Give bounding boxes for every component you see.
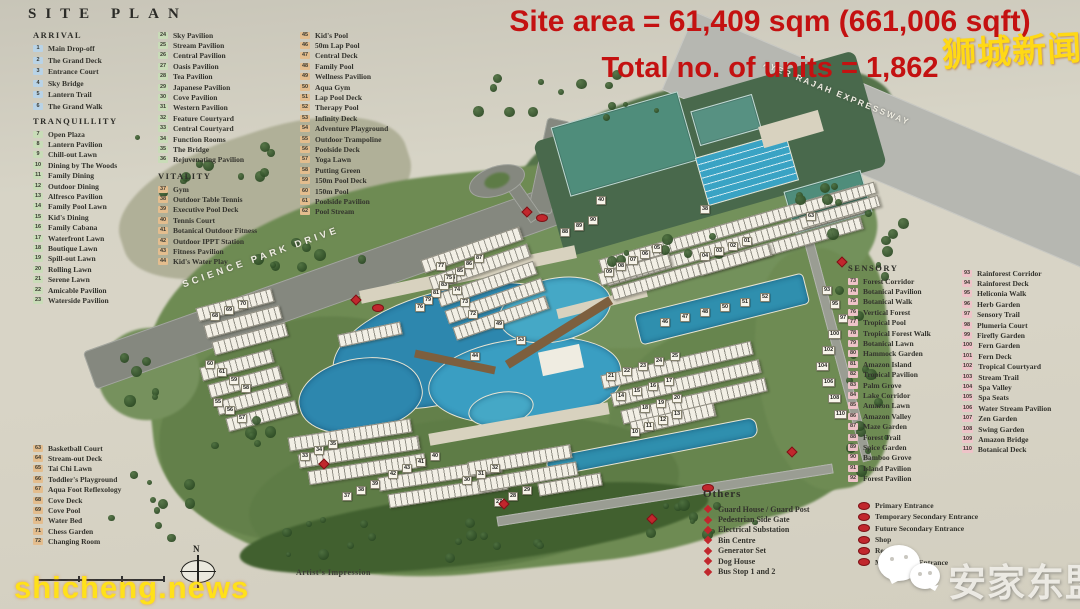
map-tree-icon — [120, 353, 129, 362]
legend-item: 96Herb Garden — [962, 299, 1051, 309]
legend-item: 109Amazon Bridge — [962, 434, 1051, 444]
legend-item: Generator Set — [703, 546, 810, 556]
legend-item: Bin Centre — [703, 535, 810, 545]
map-tree-icon — [282, 528, 292, 538]
legend-item: 81Amazon Island — [848, 359, 931, 369]
legend-item-label: Main Drop-off — [48, 44, 95, 53]
unit-number-marker: 23 — [638, 362, 648, 371]
legend-item-marker: 99 — [962, 332, 972, 339]
legend-item-marker: 54 — [300, 125, 310, 132]
legend-item-label: Family Pool — [315, 62, 354, 71]
map-tree-icon — [888, 229, 898, 239]
legend-item-label: Open Plaza — [48, 130, 85, 139]
legend-item: 108Swing Garden — [962, 424, 1051, 434]
legend-item-label: Pool Stream — [315, 207, 354, 216]
unit-number-marker: 25 — [670, 352, 680, 361]
legend-item-marker: 42 — [158, 238, 168, 245]
unit-number-marker: 22 — [622, 367, 632, 376]
legend-item-marker: 65 — [33, 465, 43, 472]
legend-item-label: Cove Deck — [48, 496, 82, 505]
legend-item-label: Amazon Lawn — [863, 401, 910, 410]
legend-title-arrival: ARRIVAL — [33, 30, 102, 40]
unit-number-marker: 28 — [508, 492, 518, 501]
legend-item-label: Executive Pool Deck — [173, 205, 238, 214]
legend-item-label: Putting Green — [315, 166, 360, 175]
legend-item-marker: 8 — [33, 141, 43, 148]
legend-item-label: Boutique Lawn — [48, 244, 97, 253]
legend-item-marker: 68 — [33, 497, 43, 504]
unit-number-marker: 69 — [224, 306, 234, 315]
legend-item: 79Botanical Lawn — [848, 338, 931, 348]
legend-item: 98Plumeria Court — [962, 320, 1051, 330]
legend-item-marker — [704, 567, 712, 575]
legend-item: 105Spa Seats — [962, 393, 1051, 403]
legend-item-label: 150m Pool — [315, 187, 349, 196]
legend-item-label: 50m Lap Pool — [315, 41, 360, 50]
legend-item-marker: 83 — [848, 382, 858, 389]
legend-item-label: Primary Entrance — [875, 501, 934, 510]
legend-item-marker: 28 — [158, 73, 168, 80]
unit-number-marker: 33 — [300, 452, 310, 461]
legend-item-label: Guard House / Guard Post — [718, 505, 810, 514]
map-tree-icon — [473, 106, 483, 116]
legend-item-marker: 48 — [300, 63, 310, 70]
unit-number-marker: 89 — [574, 222, 584, 231]
legend-item-label: The Bridge — [173, 145, 209, 154]
legend-item-label: Yoga Lawn — [315, 155, 351, 164]
legend-item-marker: 94 — [962, 280, 972, 287]
legend-item-marker: 24 — [158, 32, 168, 39]
map-tree-icon — [155, 522, 162, 529]
legend-item-marker: 35 — [158, 146, 168, 153]
legend-item-label: Shop — [875, 535, 891, 544]
legend-item-marker: 4 — [33, 80, 43, 87]
legend-item: Bus Stop 1 and 2 — [703, 566, 810, 576]
legend-item-label: Outdoor IPPT Station — [173, 237, 244, 246]
unit-number-marker: 72 — [468, 310, 478, 319]
legend-title-others: Others — [703, 488, 810, 500]
map-tree-icon — [248, 432, 256, 440]
legend-item-label: Amazon Island — [863, 360, 912, 369]
legend-item: 33Central Courtyard — [158, 124, 244, 134]
legend-item: Pedestrian Side Gate — [703, 514, 810, 524]
legend-item-label: Spill-out Lawn — [48, 254, 96, 263]
legend-item-label: Kid's Pool — [315, 31, 348, 40]
legend-item: 37Gym — [158, 184, 257, 194]
legend-item-label: Dog House — [718, 557, 755, 566]
legend-item: 60150m Pool — [300, 186, 388, 196]
legend-item-marker: 89 — [848, 444, 858, 451]
map-tree-icon — [646, 528, 656, 538]
legend-item: 32Feature Courtyard — [158, 113, 244, 123]
unit-number-marker: 55 — [213, 398, 223, 407]
legend-item-label: Fitness Pavilion — [173, 247, 224, 256]
legend-item-marker: 23 — [33, 297, 43, 304]
unit-number-marker: 03 — [714, 247, 724, 256]
legend-item: 21Serene Lawn — [33, 274, 118, 284]
unit-number-marker: 42 — [388, 470, 398, 479]
legend-item-marker: 88 — [848, 434, 858, 441]
legend-item-marker: 21 — [33, 276, 43, 283]
unit-number-marker: 48 — [700, 308, 710, 317]
legend-item: 9Chill-out Lawn — [33, 150, 118, 160]
legend-item-label: Lap Pool Deck — [315, 93, 362, 102]
legend-item: 29Japanese Pavilion — [158, 82, 244, 92]
legend-item: 69Cove Pool — [33, 505, 121, 515]
legend-item-label: Amicable Pavilion — [48, 286, 107, 295]
legend-item-label: Wellness Pavilion — [315, 72, 371, 81]
legend-item-marker: 16 — [33, 224, 43, 231]
legend-item-marker: 2 — [33, 57, 43, 64]
entrance-oval-marker — [536, 214, 548, 222]
legend-item: 78Tropical Forest Walk — [848, 328, 931, 338]
unit-number-marker: 90 — [588, 216, 598, 225]
legend-item-label: Swing Garden — [978, 425, 1024, 434]
legend-item-marker: 101 — [962, 353, 973, 360]
legend-item-marker: 103 — [962, 374, 973, 381]
legend-item-marker: 104 — [962, 384, 973, 391]
legend-section-tranquillity: TRANQUILLITY7Open Plaza8Lantern Pavilion… — [33, 116, 118, 306]
map-tree-icon — [663, 503, 669, 509]
legend-item-marker — [704, 515, 712, 523]
legend-item-marker: 51 — [300, 94, 310, 101]
legend-item-label: Sensory Trail — [977, 310, 1020, 319]
unit-number-marker: 43 — [402, 464, 412, 473]
legend-item: 50Aqua Gym — [300, 82, 388, 92]
legend-item-marker: 22 — [33, 287, 43, 294]
legend-item-marker: 102 — [962, 363, 973, 370]
legend-item-marker: 90 — [848, 454, 858, 461]
unit-number-marker: 13 — [672, 410, 682, 419]
legend-section-arrival: ARRIVAL1Main Drop-off2The Grand Deck3Ent… — [33, 30, 102, 112]
unit-number-marker: 58 — [241, 384, 251, 393]
legend-item-label: Changing Room — [48, 537, 100, 546]
legend-item-marker: 40 — [158, 217, 168, 224]
map-tree-icon — [265, 426, 276, 437]
legend-item-marker: 6 — [33, 103, 43, 110]
legend-item-label: Pedestrian Side Gate — [718, 515, 790, 524]
legend-item-marker: 82 — [848, 371, 858, 378]
legend-item-label: Central Pavilion — [173, 51, 226, 60]
legend-item: 86Amazon Valley — [848, 411, 931, 421]
legend-item-marker: 110 — [962, 446, 973, 453]
legend-item-label: Bus Stop 1 and 2 — [718, 567, 775, 576]
legend-item: 64Stream-out Deck — [33, 453, 121, 463]
map-tree-icon — [528, 107, 538, 117]
legend-item-marker: 10 — [33, 162, 43, 169]
legend-item-label: Island Pavilion — [863, 464, 911, 473]
legend-item: 67Aqua Foot Reflexology — [33, 485, 121, 495]
legend-item: 44Kid's Water Play — [158, 257, 257, 267]
legend-item-marker: 20 — [33, 266, 43, 273]
site-plan-image: SCIENCE PARK DRIVEAYER RAJAH EXPRESSWAY8… — [0, 0, 1080, 609]
legend-item-marker: 5 — [33, 91, 43, 98]
legend-item-marker: 53 — [300, 115, 310, 122]
legend-item-marker — [858, 513, 870, 521]
legend-item: 102Tropical Courtyard — [962, 362, 1051, 372]
map-tree-icon — [882, 246, 894, 258]
unit-number-marker: 102 — [822, 346, 835, 355]
legend-item-label: Infinity Deck — [315, 114, 357, 123]
legend-item-label: Amazon Bridge — [978, 435, 1028, 444]
map-tree-icon — [490, 84, 497, 91]
legend-item: 22Amicable Pavilion — [33, 285, 118, 295]
unit-number-marker: 05 — [652, 244, 662, 253]
unit-number-marker: 60 — [205, 360, 215, 369]
legend-item: 43Fitness Pavilion — [158, 246, 257, 256]
legend-item-marker: 98 — [962, 322, 972, 329]
legend-item: 55Outdoor Trampoline — [300, 134, 388, 144]
legend-item-marker: 58 — [300, 167, 310, 174]
legend-item: 85Amazon Lawn — [848, 401, 931, 411]
legend-item-label: Cove Pavilion — [173, 93, 217, 102]
legend-item-label: The Grand Deck — [48, 56, 102, 65]
map-tree-icon — [898, 218, 909, 229]
map-tree-icon — [558, 89, 564, 95]
legend-item-label: Toddler's Playground — [48, 475, 117, 484]
legend-item-marker: 15 — [33, 214, 43, 221]
legend-item-marker: 47 — [300, 52, 310, 59]
unit-number-marker: 77 — [436, 262, 446, 271]
legend-item-label: Central Deck — [315, 51, 358, 60]
legend-item-marker: 71 — [33, 528, 43, 535]
map-tree-icon — [480, 532, 488, 540]
legend-item-label: Forest Pavilion — [863, 474, 911, 483]
map-tree-icon — [135, 135, 140, 140]
legend-item: 65Tai Chi Lawn — [33, 464, 121, 474]
legend-item-label: Spa Valley — [978, 383, 1012, 392]
unit-number-marker: 10 — [630, 428, 640, 437]
legend-item-marker: 87 — [848, 423, 858, 430]
legend-item: 18Boutique Lawn — [33, 243, 118, 253]
legend-item-marker — [704, 536, 712, 544]
legend-item-label: Rainforest Corridor — [977, 269, 1042, 278]
unit-number-marker: 18 — [640, 404, 650, 413]
legend-item-marker: 26 — [158, 52, 168, 59]
unit-number-marker: 44 — [470, 352, 480, 361]
artist-impression-caption: Artist's Impression — [296, 568, 371, 577]
legend-section-pools: 45Kid's Pool4650m Lap Pool47Central Deck… — [300, 30, 388, 217]
legend-item-marker: 27 — [158, 63, 168, 70]
legend-item: Guard House / Guard Post — [703, 504, 810, 514]
unit-number-marker: 40 — [596, 196, 606, 205]
legend-item-label: Gym — [173, 185, 189, 194]
legend-item-label: Function Rooms — [173, 135, 226, 144]
legend-item-marker: 70 — [33, 517, 43, 524]
unit-number-marker: 93 — [822, 286, 832, 295]
legend-item: 66Toddler's Playground — [33, 474, 121, 484]
map-tree-icon — [158, 499, 168, 509]
legend-item: 19Spill-out Lawn — [33, 254, 118, 264]
legend-item: 47Central Deck — [300, 51, 388, 61]
legend-item-marker: 13 — [33, 193, 43, 200]
legend-item-label: The Grand Walk — [48, 102, 102, 111]
legend-item-marker: 14 — [33, 203, 43, 210]
legend-item: 101Fern Deck — [962, 351, 1051, 361]
legend-item-label: Therapy Pool — [315, 103, 359, 112]
unit-number-marker: 46 — [660, 318, 670, 327]
legend-item-marker — [858, 547, 870, 555]
legend-item: 49Wellness Pavilion — [300, 72, 388, 82]
legend-item-label: Water Bed — [48, 516, 82, 525]
legend-item: 73Forest Corridor — [848, 276, 931, 286]
map-tree-icon — [831, 183, 838, 190]
watermark-top-right: 狮城新闻 — [941, 20, 1080, 76]
legend-section-others: OthersGuard House / Guard PostPedestrian… — [703, 488, 810, 577]
legend-item-marker: 69 — [33, 507, 43, 514]
watermark-bottom-left: shicheng.news — [14, 570, 249, 606]
legend-item-marker: 85 — [848, 402, 858, 409]
legend-item-marker: 37 — [158, 186, 168, 193]
map-tree-icon — [835, 286, 844, 295]
legend-item-marker: 1 — [33, 45, 43, 52]
legend-item-marker: 30 — [158, 94, 168, 101]
map-tree-icon — [252, 416, 261, 425]
legend-item-marker: 73 — [848, 278, 858, 285]
legend-item: 40Tennis Court — [158, 215, 257, 225]
unit-number-marker: 40 — [430, 452, 440, 461]
legend-item-label: Western Pavilion — [173, 103, 228, 112]
legend-item-label: Waterfront Lawn — [48, 234, 104, 243]
legend-item-label: Rainforest Deck — [977, 279, 1029, 288]
legend-item-marker: 46 — [300, 42, 310, 49]
unit-number-marker: 61 — [217, 368, 227, 377]
legend-item-label: Central Courtyard — [173, 124, 234, 133]
legend-item-marker — [858, 558, 870, 566]
legend-item-label: Poolside Pavilion — [315, 197, 370, 206]
legend-item-marker: 9 — [33, 151, 43, 158]
legend-item-label: Outdoor Table Tennis — [173, 195, 242, 204]
legend-item: 53Infinity Deck — [300, 113, 388, 123]
legend-item: 5Lantern Trail — [33, 89, 102, 101]
legend-item-label: 150m Pool Deck — [315, 176, 367, 185]
legend-item: 4Sky Bridge — [33, 78, 102, 90]
unit-number-marker: 74 — [452, 286, 462, 295]
legend-item-label: Herb Garden — [977, 300, 1020, 309]
legend-item-label: Botanical Deck — [978, 445, 1027, 454]
unit-number-marker: 110 — [834, 410, 847, 419]
legend-item-marker: 3 — [33, 68, 43, 75]
legend-item: 90Bamboo Grove — [848, 453, 931, 463]
unit-number-marker: 75 — [444, 274, 454, 283]
legend-item: 87Maze Garden — [848, 421, 931, 431]
legend-item: 31Western Pavilion — [158, 103, 244, 113]
legend-item-label: Palm Grove — [863, 381, 901, 390]
legend-item-label: Amazon Valley — [863, 412, 911, 421]
legend-item: 2The Grand Deck — [33, 55, 102, 67]
watermark-bottom-right: 安家东盟 — [948, 552, 1080, 607]
legend-item: Primary Entrance — [858, 500, 978, 511]
legend-item-label: Zen Garden — [978, 414, 1017, 423]
legend-item: 45Kid's Pool — [300, 30, 388, 40]
unit-number-marker: 70 — [238, 300, 248, 309]
unit-number-marker: 21 — [606, 372, 616, 381]
legend-item: 36Rejuvenating Pavilion — [158, 155, 244, 165]
unit-number-marker: 76 — [415, 303, 425, 312]
legend-item-marker — [858, 536, 870, 544]
legend-item-marker: 96 — [962, 301, 972, 308]
unit-number-marker: 14 — [616, 392, 626, 401]
unit-number-marker: 20 — [672, 394, 682, 403]
legend-item: 91Island Pavilion — [848, 463, 931, 473]
map-tree-icon — [623, 102, 628, 107]
legend-item: 10Dining by The Woods — [33, 160, 118, 170]
unit-number-marker: 32 — [490, 464, 500, 473]
legend-item-marker: 12 — [33, 183, 43, 190]
legend-item-label: Bamboo Grove — [863, 453, 911, 462]
legend-item-label: Waterside Pavilion — [48, 296, 109, 305]
unit-number-marker: 31 — [476, 470, 486, 479]
unit-number-marker: 49 — [494, 320, 504, 329]
legend-item-marker: 72 — [33, 538, 43, 545]
legend-item-marker — [704, 557, 712, 565]
legend-item-marker: 18 — [33, 245, 43, 252]
legend-item: 76Vertical Forest — [848, 307, 931, 317]
legend-item-label: Lake Corridor — [863, 391, 910, 400]
legend-item: 89Spice Garden — [848, 442, 931, 452]
legend-item-marker: 78 — [848, 330, 858, 337]
legend-item-marker: 34 — [158, 136, 168, 143]
legend-item-label: Electrical Substation — [718, 525, 789, 534]
entrance-oval-marker — [372, 304, 384, 312]
unit-number-marker: 50 — [720, 303, 730, 312]
legend-item: 6The Grand Walk — [33, 101, 102, 113]
legend-item: 95Heliconia Walk — [962, 289, 1051, 299]
legend-item: Future Secondary Entrance — [858, 523, 978, 534]
legend-item-marker: 76 — [848, 309, 858, 316]
legend-item-marker: 41 — [158, 227, 168, 234]
unit-number-marker: 38 — [356, 486, 366, 495]
map-tree-icon — [504, 107, 514, 117]
legend-title-tranquillity: TRANQUILLITY — [33, 116, 118, 126]
map-tree-icon — [320, 517, 326, 523]
legend-item-marker: 31 — [158, 104, 168, 111]
legend-item: 52Therapy Pool — [300, 103, 388, 113]
legend-item-marker: 108 — [962, 426, 973, 433]
legend-section-pavilions: 24Sky Pavilion25Stream Pavilion26Central… — [158, 30, 244, 165]
legend-item-label: Botanical Pavilion — [863, 287, 922, 296]
unit-number-marker: 56 — [225, 406, 235, 415]
legend-item-marker: 93 — [962, 270, 972, 277]
legend-item: 62Pool Stream — [300, 207, 388, 217]
map-tree-icon — [368, 533, 376, 541]
legend-item: 70Water Bed — [33, 516, 121, 526]
unit-number-marker: 37 — [342, 492, 352, 501]
legend-item: 27Oasis Pavilion — [158, 61, 244, 71]
map-tree-icon — [822, 194, 833, 205]
legend-item-label: Outdoor Trampoline — [315, 135, 381, 144]
legend-item-label: Stream Trail — [978, 373, 1019, 382]
legend-item-marker: 62 — [300, 208, 310, 215]
legend-item-label: Rolling Lawn — [48, 265, 92, 274]
map-tree-icon — [314, 249, 326, 261]
legend-item-marker: 100 — [962, 342, 973, 349]
legend-item-label: Heliconia Walk — [977, 289, 1026, 298]
legend-item-label: Basketball Court — [48, 444, 103, 453]
legend-item-label: Family Dining — [48, 171, 94, 180]
legend-item-label: Hammock Garden — [863, 349, 923, 358]
legend-item-label: Tea Pavilion — [173, 72, 213, 81]
legend-item: 14Family Pool Lawn — [33, 202, 118, 212]
legend-item: 3Entrance Court — [33, 66, 102, 78]
legend-item-label: Feature Courtyard — [173, 114, 234, 123]
legend-item: 7Open Plaza — [33, 129, 118, 139]
legend-item: 110Botanical Deck — [962, 445, 1051, 455]
legend-item-marker: 33 — [158, 125, 168, 132]
legend-item-marker: 43 — [158, 248, 168, 255]
unit-number-marker: 53 — [516, 336, 526, 345]
legend-item-label: Rejuvenating Pavilion — [173, 155, 244, 164]
